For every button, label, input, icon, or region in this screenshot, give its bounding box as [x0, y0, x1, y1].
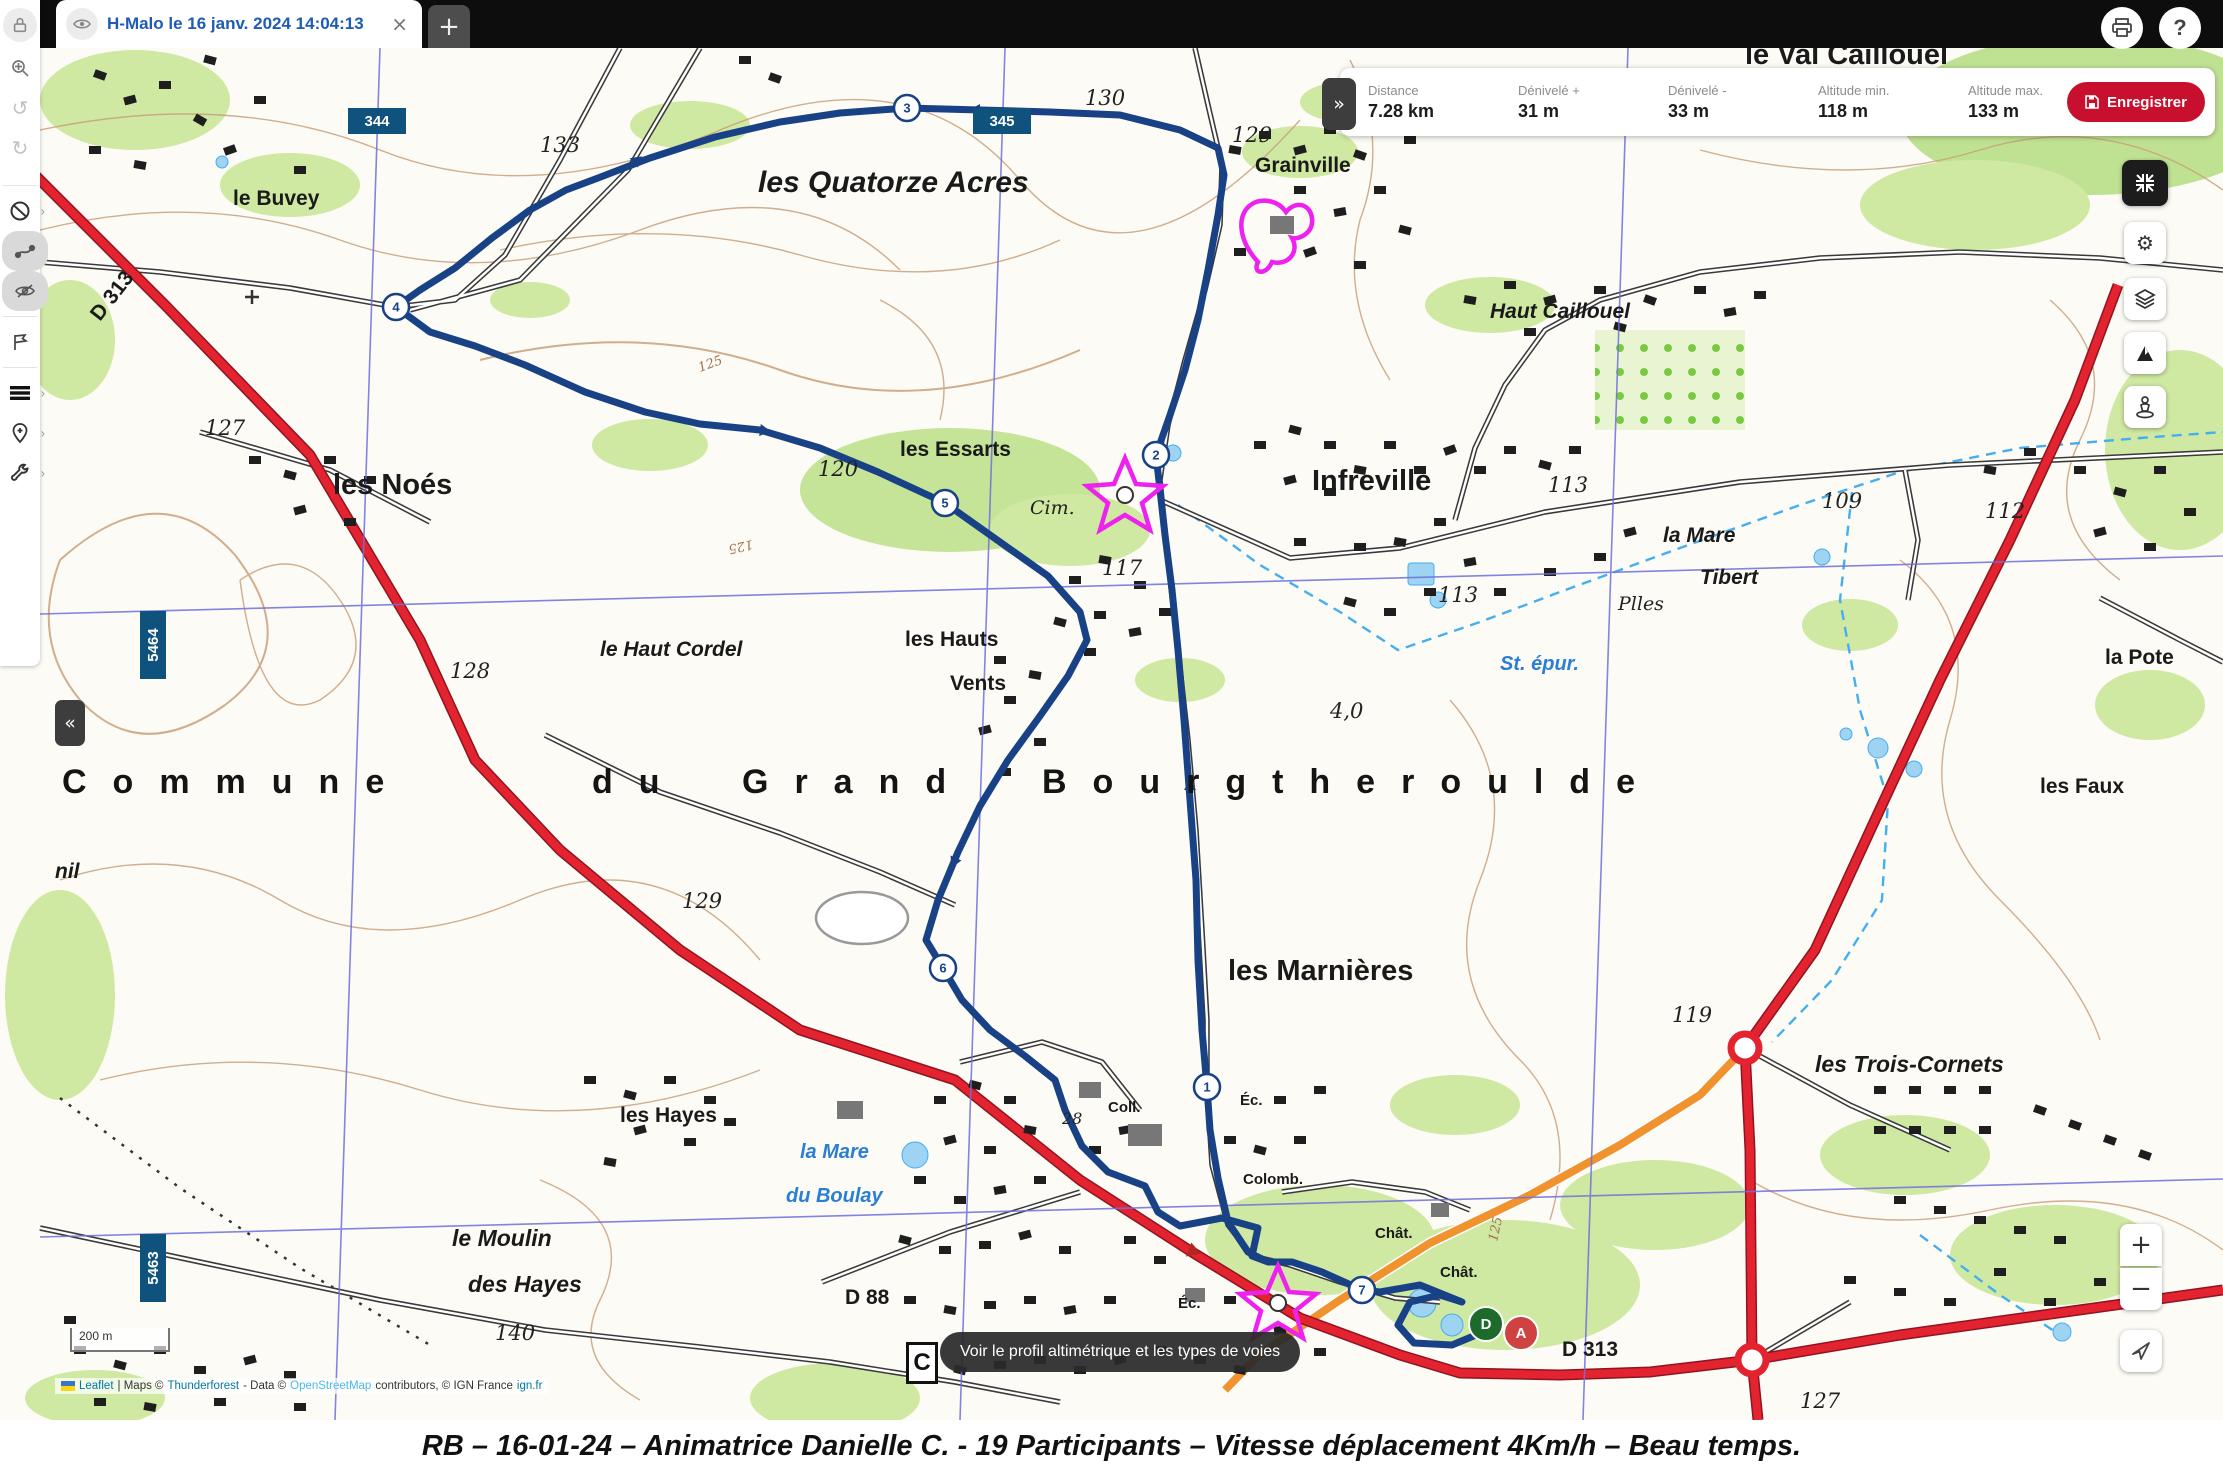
app-window: le Buveyles Quatorze AcresGrainvillele V…: [0, 0, 2223, 1473]
grid-badge: 5464: [140, 611, 166, 679]
map-label: les Essarts: [900, 438, 1011, 461]
map-label: 127: [205, 416, 246, 440]
svg-text:D: D: [1481, 1316, 1492, 1333]
add-pin-icon[interactable]: ›: [3, 413, 37, 453]
map-label: les Noés: [333, 469, 452, 501]
caption-text: RB – 16-01-24 – Animatrice Danielle C. -…: [0, 1420, 2223, 1473]
chevron-right-icon: ›: [41, 386, 45, 401]
relief-button[interactable]: [2124, 332, 2166, 374]
grid-badge: 5463: [140, 1234, 166, 1302]
tab-bar: H-Malo le 16 janv. 2024 14:04:13 × + ?: [0, 0, 2223, 48]
help-button[interactable]: ?: [2159, 7, 2201, 49]
settings-button[interactable]: ⚙: [2124, 222, 2166, 264]
map-label: 109: [1822, 489, 1862, 513]
edit-route-icon[interactable]: [2, 231, 48, 271]
route-tab[interactable]: H-Malo le 16 janv. 2024 14:04:13 ×: [56, 0, 422, 48]
map-label: 117: [1102, 556, 1143, 580]
svg-text:6: 6: [939, 961, 946, 976]
map-label: Colomb.: [1243, 1171, 1303, 1188]
exit-fullscreen-button[interactable]: [2122, 160, 2168, 206]
eye-icon: [66, 8, 98, 40]
waypoint-marker[interactable]: 3: [894, 95, 920, 121]
map-label: les Hauts: [905, 628, 998, 651]
map-canvas[interactable]: le Buveyles Quatorze AcresGrainvillele V…: [0, 0, 2223, 1473]
chevron-right-icon: ›: [41, 204, 45, 219]
svg-text:4: 4: [392, 300, 400, 315]
stat-altitude-min: Altitude min.118 m: [1818, 83, 1968, 122]
map-label: le Haut Cordel: [600, 638, 744, 661]
map-label: la Pote: [2105, 646, 2174, 669]
ign-link[interactable]: ign.fr: [517, 1380, 543, 1392]
eye-off-icon[interactable]: [2, 271, 48, 311]
street-view-button[interactable]: [2124, 386, 2166, 428]
star-center: [1117, 487, 1133, 503]
stat-elevation-gain: Dénivelé +31 m: [1518, 83, 1668, 122]
layers-icon: [2133, 287, 2157, 311]
oval-track: [816, 892, 908, 944]
gear-icon: ⚙: [2136, 233, 2154, 253]
map-label: les Quatorze Acres: [758, 166, 1029, 199]
grid-badge: 345: [973, 108, 1031, 134]
svg-text:7: 7: [1358, 1283, 1365, 1298]
map-label: D 88: [845, 1286, 890, 1309]
map-label: Éc.: [1178, 1295, 1201, 1312]
minus-icon: −: [2130, 1274, 2152, 1304]
osm-link[interactable]: OpenStreetMap: [290, 1380, 371, 1392]
map-label: 120: [818, 457, 858, 481]
stat-distance: Distance7.28 km: [1368, 83, 1518, 122]
map-label: 28: [1061, 1109, 1082, 1128]
map-label: 130: [1085, 86, 1125, 110]
stats-panel: Distance7.28 km Dénivelé +31 m Dénivelé …: [1340, 68, 2215, 136]
map-label: le Buvey: [233, 187, 320, 210]
new-tab-button[interactable]: +: [428, 5, 470, 48]
map-label: la Mare: [800, 1141, 869, 1163]
map-label: Infreville: [1312, 465, 1431, 497]
map-label: Grainville: [1255, 154, 1351, 177]
locate-button[interactable]: [2120, 1330, 2162, 1372]
map-label: 113: [1438, 583, 1478, 607]
sidebar-collapse-button[interactable]: «: [55, 700, 85, 746]
map-label: St. épur.: [1500, 653, 1579, 675]
mountain-icon: [2133, 342, 2157, 364]
undo-icon[interactable]: ↺: [3, 88, 37, 128]
help-icon: ?: [2173, 15, 2186, 41]
map-label: 113: [1548, 473, 1588, 497]
route-endpoint-A[interactable]: A: [1504, 1316, 1538, 1350]
map-label: la Mare: [1663, 524, 1736, 547]
menu-icon[interactable]: ›: [3, 373, 37, 413]
chevron-right-icon: ›: [41, 466, 45, 481]
map-label: Grand: [742, 763, 972, 801]
map-label: Vents: [950, 672, 1006, 695]
waypoint-marker[interactable]: 1: [1194, 1074, 1220, 1100]
map-label: Haut Caillouel: [1490, 300, 1631, 323]
map-label: 119: [1672, 1003, 1712, 1027]
svg-text:A: A: [1516, 1325, 1527, 1342]
svg-text:345: 345: [989, 113, 1014, 130]
map-label: les Marnières: [1228, 955, 1413, 987]
print-icon: [2111, 18, 2133, 38]
no-entry-icon[interactable]: ›: [3, 191, 37, 231]
scale-bar: 200 m: [70, 1328, 170, 1352]
map-label: Chât.: [1440, 1264, 1478, 1281]
map-label: 128: [450, 659, 490, 683]
flag-icon[interactable]: [3, 322, 37, 362]
stats-collapse-button[interactable]: »: [1322, 78, 1356, 130]
svg-text:5463: 5463: [145, 1251, 162, 1284]
attribution: Leaflet | Maps © Thunderforest - Data © …: [55, 1378, 548, 1394]
map-label: les Faux: [2040, 775, 2124, 798]
leaflet-link[interactable]: Leaflet: [79, 1380, 114, 1392]
map-label: 140: [495, 1321, 535, 1345]
svg-text:5: 5: [941, 496, 948, 511]
map-label: nil: [55, 860, 81, 883]
wrench-icon[interactable]: ›: [3, 453, 37, 493]
map-label: 129: [1232, 123, 1272, 147]
map-label: 4,0: [1329, 699, 1363, 723]
map-label: les Trois-Cornets: [1815, 1051, 2004, 1077]
tab-title: H-Malo le 16 janv. 2024 14:04:13: [107, 14, 387, 34]
tab-close-icon[interactable]: ×: [387, 12, 412, 36]
redo-icon[interactable]: ↻: [3, 128, 37, 168]
zoom-out-button[interactable]: −: [2120, 1268, 2162, 1310]
star-center: [1270, 1295, 1286, 1311]
svg-text:2: 2: [1152, 448, 1159, 463]
pegman-icon: [2134, 395, 2156, 419]
thunderforest-link[interactable]: Thunderforest: [168, 1380, 240, 1392]
waypoint-marker[interactable]: 6: [930, 955, 956, 981]
svg-text:3: 3: [903, 101, 910, 116]
save-icon: [2085, 95, 2099, 109]
map-label: Chât.: [1375, 1225, 1413, 1242]
exit-fullscreen-icon: [2134, 172, 2156, 194]
zoom-target-icon[interactable]: [3, 48, 37, 88]
tools-sidebar: ↺ ↻ › › › ›: [0, 0, 40, 666]
print-button[interactable]: [2101, 7, 2143, 49]
layers-button[interactable]: [2124, 278, 2166, 320]
map-label: Tibert: [1700, 566, 1759, 589]
plus-icon: +: [2130, 1230, 2152, 1260]
map-label: Cim.: [1030, 497, 1075, 519]
map-label: 129: [682, 889, 722, 913]
stat-elevation-loss: Dénivelé -33 m: [1668, 83, 1818, 122]
map-label: Coll.: [1108, 1099, 1141, 1116]
grid-badge: 344: [348, 108, 406, 134]
waypoint-marker[interactable]: 5: [932, 490, 958, 516]
svg-text:1: 1: [1203, 1080, 1210, 1095]
lock-icon[interactable]: [3, 8, 37, 42]
svg-text:344: 344: [364, 113, 390, 130]
map-label: 133: [540, 133, 580, 157]
route-endpoint-D[interactable]: D: [1469, 1307, 1503, 1341]
navigation-arrow-icon: [2129, 1339, 2153, 1363]
map-label: D 313: [1562, 1338, 1618, 1361]
zoom-in-button[interactable]: +: [2120, 1224, 2162, 1266]
map-label: 112: [1985, 499, 2025, 523]
map-label: le Moulin: [452, 1225, 552, 1251]
waypoint-marker[interactable]: 2: [1143, 442, 1169, 468]
map-label: Bourgtheroulde: [1042, 763, 1661, 801]
map-label: des Hayes: [468, 1271, 582, 1297]
map-label: Plles: [1617, 593, 1664, 615]
map-label: Commune: [62, 763, 410, 801]
map-label: 127: [1800, 1389, 1841, 1413]
map-label: du Boulay: [786, 1185, 884, 1207]
chevron-right-icon: ›: [41, 426, 45, 441]
waypoint-marker[interactable]: 4: [383, 294, 409, 320]
map-symbol-c: C: [906, 1342, 938, 1384]
save-button[interactable]: Enregistrer: [2067, 82, 2205, 122]
ukraine-flag-icon: [61, 1381, 75, 1391]
map-label: les Hayes: [620, 1104, 717, 1127]
map-label: du: [592, 763, 686, 801]
waypoint-marker[interactable]: 7: [1349, 1277, 1375, 1303]
map-label: Éc.: [1240, 1092, 1263, 1109]
profile-tooltip: Voir le profil altimétrique et les types…: [940, 1332, 1300, 1372]
svg-text:5464: 5464: [145, 628, 162, 662]
